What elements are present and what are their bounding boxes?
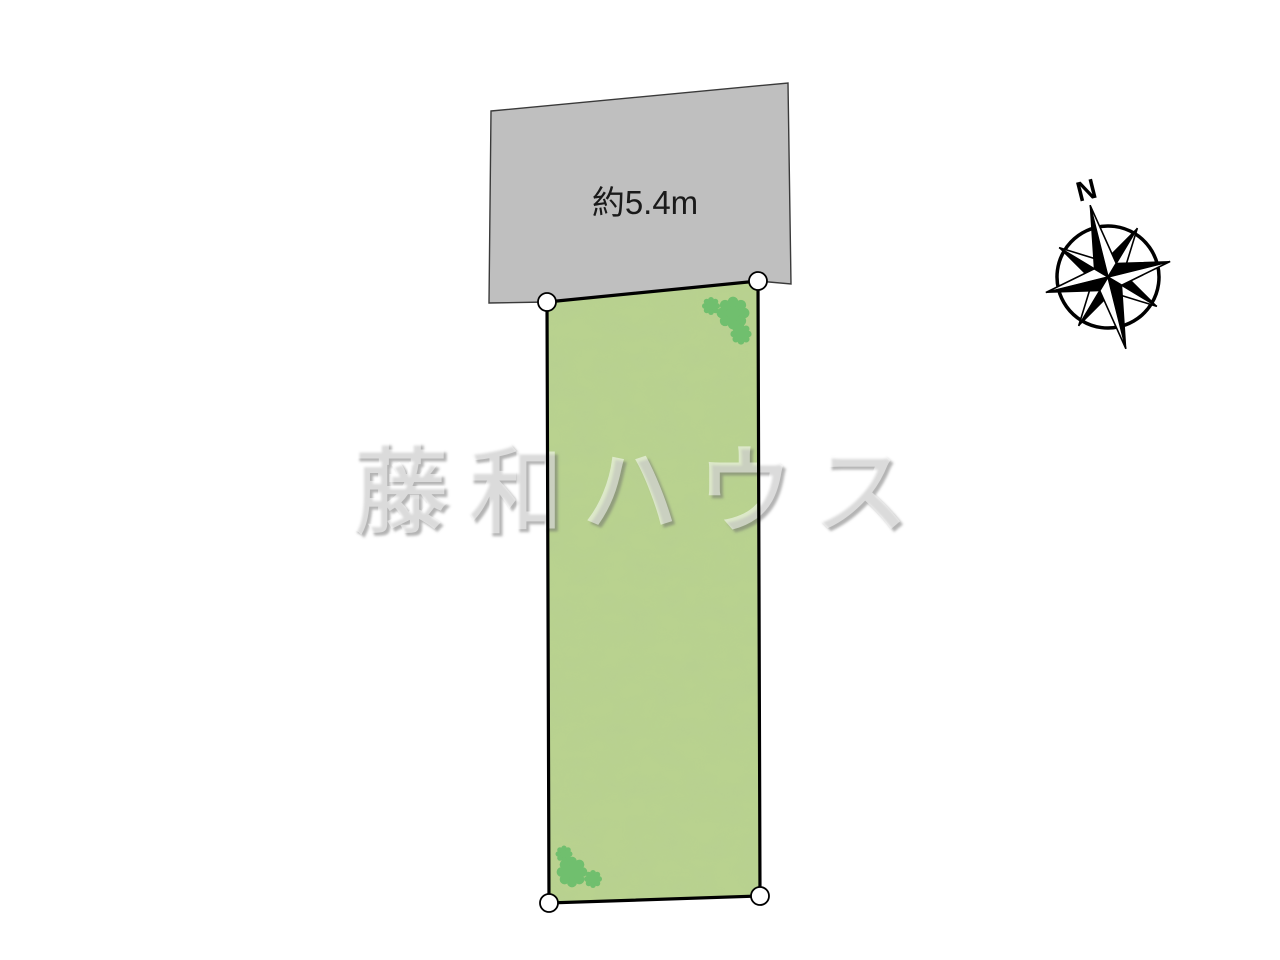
corner-marker-dot [749, 272, 767, 290]
bush-icon [584, 870, 602, 888]
compass-north-label: N [1073, 173, 1100, 208]
site-plan-canvas: 約5.4m 藤和ハウス 藤和ハウス [0, 0, 1280, 960]
bush-icon [557, 857, 588, 888]
road-width-label: 約5.4m [592, 184, 698, 221]
corner-marker-dot [540, 894, 558, 912]
corner-marker-dot [751, 887, 769, 905]
site-plan-drawing: 約5.4m 藤和ハウス 藤和ハウス [0, 0, 1280, 960]
bush-icon [730, 323, 751, 344]
bush-icon [717, 297, 750, 330]
land-plot-texture [547, 281, 760, 903]
corner-marker-dot [538, 293, 556, 311]
compass-rose-icon: N [1020, 160, 1188, 365]
watermark: 藤和ハウス [352, 439, 927, 545]
